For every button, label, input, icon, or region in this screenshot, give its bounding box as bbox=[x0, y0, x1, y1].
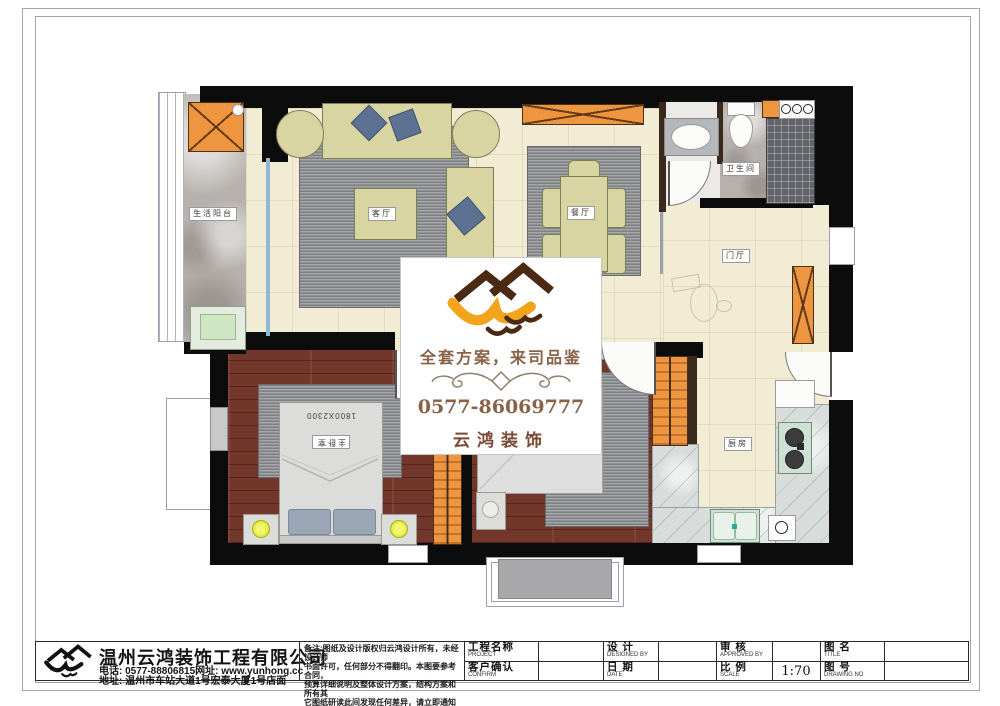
titleblock-notes: 备注:图纸及设计版权归云鸿设计所有，未经设计师 书面许可，任何部分不得翻印。本图… bbox=[304, 644, 462, 706]
living-label: 客厅 bbox=[368, 207, 396, 221]
master-wardrobe bbox=[433, 446, 462, 545]
note-line-2: 书面许可，任何部分不得翻印。本图要参考合同， bbox=[304, 662, 462, 680]
field-designed: 设 计 DESIGNED BY bbox=[603, 641, 658, 661]
bathroom-label-text: 卫生间 bbox=[726, 164, 756, 173]
titleblock-logo-icon bbox=[42, 644, 94, 680]
field-scale-cn: 比 例 bbox=[720, 662, 772, 672]
fridge bbox=[775, 380, 815, 408]
field-confirm: 客户确认 CONFIRM bbox=[464, 661, 538, 681]
field-designed-value bbox=[658, 641, 716, 661]
watermark-slogan: 全套方案，来司品鉴 bbox=[420, 344, 582, 368]
dining-sideboard bbox=[522, 104, 644, 125]
field-designed-en: DESIGNED BY bbox=[607, 652, 658, 658]
field-project: 工程名称 PROJECT bbox=[464, 641, 538, 661]
washer-knob-1 bbox=[781, 104, 791, 114]
entrance-opening bbox=[829, 352, 853, 400]
field-approved-value bbox=[772, 641, 820, 661]
person-sketch-hand bbox=[716, 300, 732, 312]
laundry-sink-basin bbox=[200, 314, 236, 340]
lamp-right bbox=[390, 520, 408, 538]
field-drawing-no-value bbox=[884, 661, 969, 681]
hall-glass-partition bbox=[660, 212, 663, 274]
field-drawing-no-en: DRAWING NO bbox=[824, 672, 884, 678]
bed-fold-lines bbox=[280, 455, 380, 489]
field-title-value bbox=[884, 641, 969, 661]
watermark-brand: 云鸿装饰 bbox=[453, 426, 549, 451]
left-bay-window bbox=[158, 92, 186, 342]
master-bed-size-text: 1800X2300 bbox=[280, 411, 382, 420]
kitchen-label: 厨房 bbox=[724, 437, 752, 451]
balcony-label-text: 生活阳台 bbox=[193, 209, 233, 218]
right-wall-window bbox=[829, 227, 855, 265]
field-title-cn: 图 名 bbox=[824, 642, 884, 652]
bathroom-label: 卫生间 bbox=[722, 162, 760, 176]
field-project-cn: 工程名称 bbox=[468, 642, 538, 652]
master-headboard bbox=[280, 535, 382, 543]
balcony-sliding-door bbox=[266, 158, 270, 336]
field-drawing-no-cn: 图 号 bbox=[824, 662, 884, 672]
washer-knob-3 bbox=[803, 104, 813, 114]
stove-knob bbox=[797, 443, 804, 450]
bathroom-right-wall bbox=[813, 86, 853, 205]
second-wardrobe bbox=[652, 356, 688, 446]
field-approved-cn: 审 核 bbox=[720, 642, 772, 652]
field-drawing-no: 图 号 DRAWING NO bbox=[820, 661, 884, 681]
drawing-sheet: 1800X2300 主卧室 生活 bbox=[0, 0, 1000, 706]
note-line-1: 备注:图纸及设计版权归云鸿设计所有，未经设计师 bbox=[304, 644, 462, 662]
note-line-3: 预算详细说明及整体设计方案，结构方案和所有其 bbox=[304, 680, 462, 698]
kitchen-label-text: 厨房 bbox=[728, 439, 748, 448]
master-bottom-window bbox=[388, 545, 428, 563]
side-table-left bbox=[276, 110, 324, 158]
company-address: 地址: 温州市车站大道1号宏泰大厦1号店面 bbox=[99, 672, 286, 687]
balcony-fixture bbox=[232, 104, 244, 116]
side-table-right bbox=[452, 110, 500, 158]
company-logo-icon bbox=[445, 262, 557, 342]
field-date-value bbox=[658, 661, 716, 681]
field-designed-cn: 设 计 bbox=[607, 642, 658, 652]
master-bed: 1800X2300 主卧室 bbox=[279, 402, 383, 544]
master-pillow-right bbox=[333, 509, 376, 535]
field-scale-value: 1:70 bbox=[772, 661, 820, 681]
lamp-left bbox=[252, 520, 270, 538]
note-line-4: 它图纸研读此间发现任何差异，请立即通知设计师。 bbox=[304, 698, 462, 706]
watermark-card: 全套方案，来司品鉴 0577-86069777 云鸿装饰 bbox=[400, 257, 602, 455]
stove-burner-2 bbox=[785, 450, 804, 469]
bath-basin bbox=[671, 124, 711, 150]
master-room-label-text: 主卧室 bbox=[316, 438, 346, 447]
living-label-text: 客厅 bbox=[372, 209, 392, 218]
watermark-phone: 0577-86069777 bbox=[418, 396, 585, 418]
kitchen-faucet bbox=[732, 524, 737, 529]
master-left-window-frame bbox=[166, 398, 214, 510]
kitchen-sink-basin-r bbox=[735, 512, 757, 540]
bottom-bay-window-slab bbox=[498, 559, 612, 599]
kitchen-appliance-knob bbox=[775, 521, 788, 534]
dining-label: 餐厅 bbox=[567, 206, 595, 220]
field-approved: 审 核 APPROVED BY bbox=[716, 641, 772, 661]
field-confirm-value bbox=[538, 661, 603, 681]
sofa bbox=[322, 103, 452, 159]
field-project-value bbox=[538, 641, 603, 661]
field-title-en: TITLE bbox=[824, 652, 884, 658]
master-room-label: 主卧室 bbox=[312, 435, 350, 449]
shoe-cabinet bbox=[792, 266, 814, 344]
kitchen-bottom-window bbox=[697, 545, 741, 563]
bath-cabinet bbox=[762, 100, 780, 118]
dining-label-text: 餐厅 bbox=[571, 208, 591, 217]
master-left-window bbox=[210, 407, 228, 451]
hall-label-text: 门厅 bbox=[726, 251, 746, 260]
second-lamp bbox=[482, 501, 499, 518]
tb-divider-1 bbox=[299, 641, 300, 681]
person-sketch-torso bbox=[690, 284, 718, 322]
field-date: 日 期 DATE bbox=[603, 661, 658, 681]
field-confirm-cn: 客户确认 bbox=[468, 662, 538, 672]
hall-label: 门厅 bbox=[722, 249, 750, 263]
field-date-cn: 日 期 bbox=[607, 662, 658, 672]
flourish-ornament bbox=[426, 368, 576, 394]
balcony-label: 生活阳台 bbox=[189, 207, 237, 221]
shower-area bbox=[766, 118, 815, 204]
field-scale: 比 例 SCALE bbox=[716, 661, 772, 681]
field-title: 图 名 TITLE bbox=[820, 641, 884, 661]
field-approved-en: APPROVED BY bbox=[720, 652, 772, 658]
washer-knob-2 bbox=[792, 104, 802, 114]
master-pillow-left bbox=[288, 509, 331, 535]
